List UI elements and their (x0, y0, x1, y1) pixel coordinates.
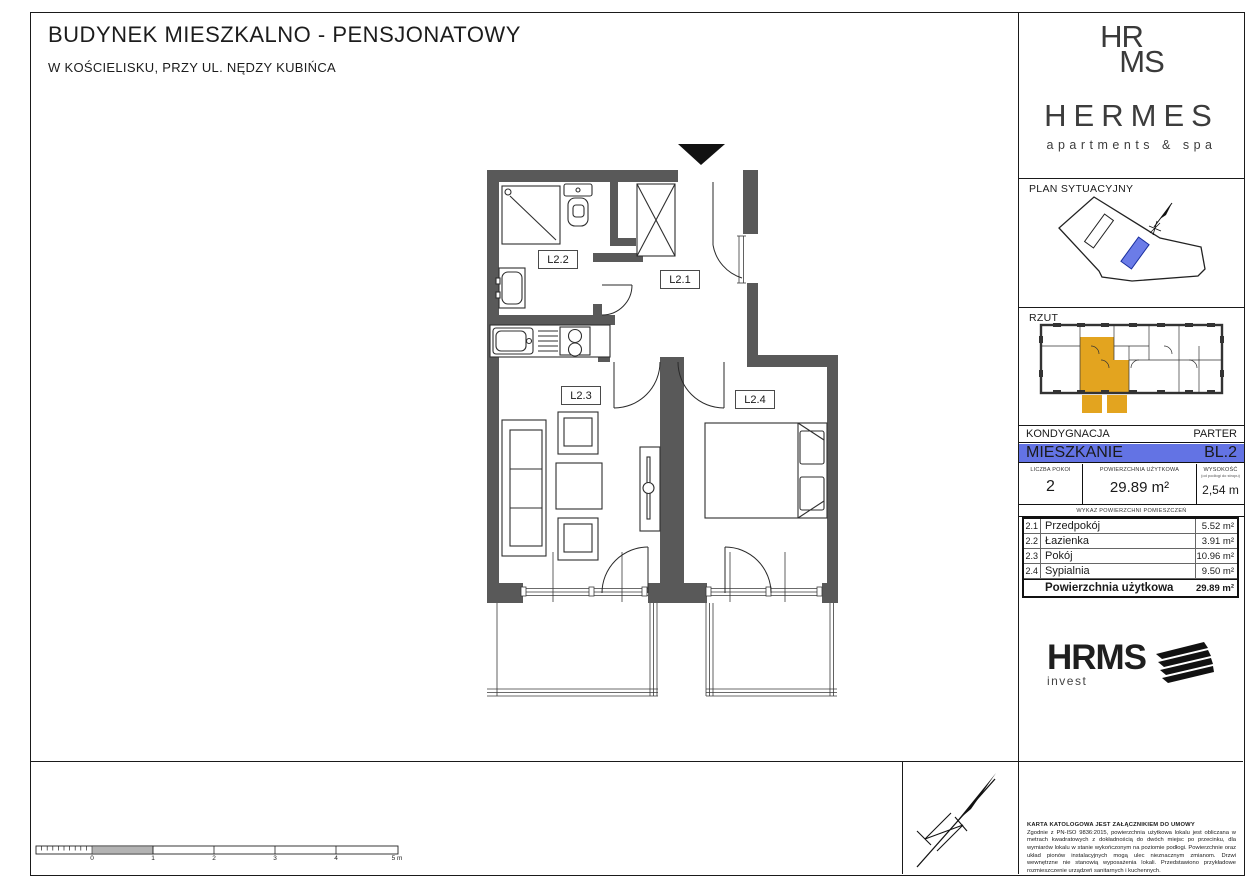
kitchenette (490, 325, 610, 357)
north-arrow-icon (905, 765, 1005, 873)
room-no: 2.4 (1024, 564, 1041, 578)
table-row: 2.3 Pokój 10.96 m² (1024, 549, 1237, 564)
wing-icon (1152, 642, 1216, 688)
scale-tick-5: 5 m (392, 855, 403, 862)
bedroom-furniture (705, 423, 827, 518)
room-area: 9.50 m² (1195, 564, 1237, 578)
invest-logo-text: HRMS (1047, 642, 1146, 674)
scale-bar (33, 842, 405, 860)
stat-area-label: POWIERZCHNIA UŻYTKOWA (1100, 467, 1179, 473)
room-no: 2.3 (1024, 549, 1041, 563)
invest-logo: HRMS invest (1019, 642, 1244, 688)
stat-height: WYSOKOŚĆ (od podłogi do stropu) 2,54 m (1197, 464, 1244, 504)
stat-area-value: 29.89 m² (1110, 479, 1169, 496)
scale-tick-2: 2 (212, 855, 216, 862)
rooms-table-header: WYKAZ POWIERZCHNI POMIESZCZEŃ (1019, 506, 1244, 517)
terraces (487, 603, 837, 696)
page-title: BUDYNEK MIESZKALNO - PENSJONATOWY (48, 22, 521, 48)
room-label-l23: L2.3 (561, 386, 601, 405)
stat-height-sublabel: (od podłogi do stropu) (1201, 473, 1240, 478)
room-label-l24: L2.4 (735, 390, 775, 409)
kondygnacja-value: PARTER (1193, 428, 1237, 440)
room-no: 2.1 (1024, 519, 1041, 533)
scale-tick-1: 1 (151, 855, 155, 862)
room-name: Przedpokój (1041, 520, 1195, 532)
site-north-icon (1149, 203, 1172, 235)
north-cell-divider (902, 762, 903, 874)
kondygnacja-label: KONDYGNACJA (1026, 428, 1110, 440)
hall-window (737, 236, 746, 283)
total-value: 29.89 m² (1195, 583, 1237, 594)
stats-row: LICZBA POKOI 2 POWIERZCHNIA UŻYTKOWA 29.… (1019, 464, 1244, 505)
table-row: 2.4 Sypialnia 9.50 m² (1024, 564, 1237, 579)
floor-plan-drawing (480, 140, 845, 710)
table-row: 2.2 Łazienka 3.91 m² (1024, 534, 1237, 549)
entrance-arrow-icon (678, 144, 725, 165)
page-subtitle: W KOŚCIELISKU, PRZY UL. NĘDZY KUBIŃCA (48, 60, 336, 75)
brand-name: HERMES (1019, 98, 1244, 134)
brand-monogram: HR MS (1019, 24, 1244, 74)
brand-tagline: apartments & spa (1019, 138, 1244, 152)
scale-tick-3: 3 (273, 855, 277, 862)
stat-rooms-label: LICZBA POKOI (1030, 467, 1070, 473)
rzut-partitions (1041, 325, 1222, 393)
scale-tick-0: 0 (90, 855, 94, 862)
legal-heading: KARTA KATOLOGOWA JEST ZAŁĄCZNIKIEM DO UM… (1027, 822, 1236, 830)
floor-row: KONDYGNACJA PARTER (1019, 425, 1244, 443)
living-room-furniture (502, 412, 660, 560)
total-label: Powierzchnia użytkowa (1024, 582, 1195, 594)
rzut-window-ticks (1039, 323, 1224, 394)
table-row: 2.1 Przedpokój 5.52 m² (1024, 519, 1237, 534)
mieszkanie-label: MIESZKANIE (1026, 444, 1123, 462)
stat-area: POWIERZCHNIA UŻYTKOWA 29.89 m² (1083, 464, 1197, 504)
room-area: 3.91 m² (1195, 534, 1237, 548)
room-name: Łazienka (1041, 535, 1195, 547)
legal-note: KARTA KATOLOGOWA JEST ZAŁĄCZNIKIEM DO UM… (1027, 822, 1236, 875)
bathroom-fixtures (496, 184, 592, 308)
apartment-row: MIESZKANIE BL.2 (1019, 444, 1244, 463)
site-plan-map (1036, 185, 1226, 300)
scale-tick-4: 4 (334, 855, 338, 862)
wardrobe (637, 184, 675, 256)
room-area: 5.52 m² (1195, 519, 1237, 533)
table-total-row: Powierzchnia użytkowa 29.89 m² (1024, 579, 1237, 596)
rooms-table: 2.1 Przedpokój 5.52 m² 2.2 Łazienka 3.91… (1022, 517, 1239, 598)
mieszkanie-value: BL.2 (1204, 444, 1237, 462)
stat-height-value: 2,54 m (1202, 483, 1239, 497)
stat-rooms: LICZBA POKOI 2 (1019, 464, 1083, 504)
stat-rooms-value: 2 (1046, 478, 1055, 496)
room-area: 10.96 m² (1195, 549, 1237, 563)
room-label-l21: L2.1 (660, 270, 700, 289)
brand-monogram-line2: MS (1039, 49, 1244, 74)
rzut-highlight (1080, 337, 1129, 413)
room-no: 2.2 (1024, 534, 1041, 548)
room-label-l22: L2.2 (538, 250, 578, 269)
rzut-mini-plan (1039, 318, 1229, 418)
room-name: Sypialnia (1041, 565, 1195, 577)
legal-body: Zgodnie z PN-ISO 9836:2015, powierzchnia… (1027, 830, 1236, 876)
sidebar: HR MS HERMES apartments & spa PLAN SYTUA… (1018, 12, 1244, 874)
room-name: Pokój (1041, 550, 1195, 562)
